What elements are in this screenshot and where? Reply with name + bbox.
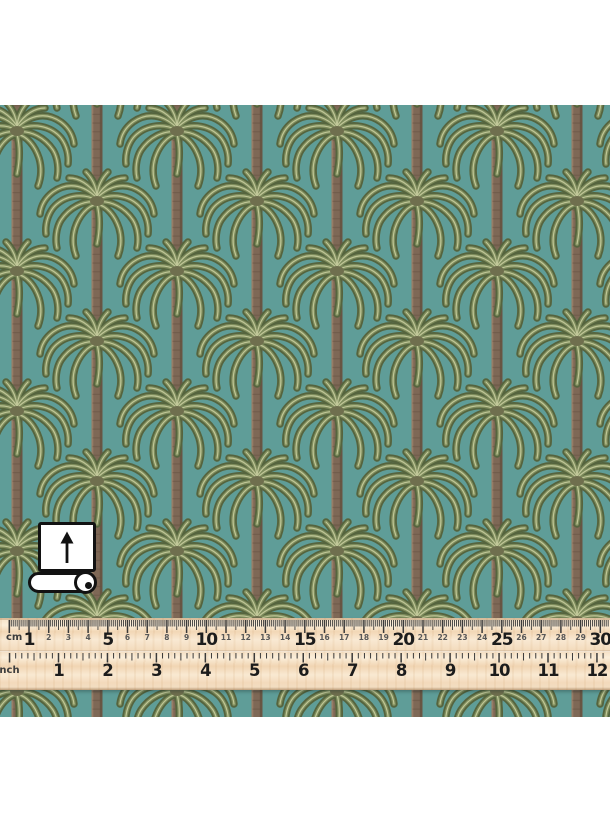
cm-number: 8 bbox=[164, 633, 169, 642]
cm-number: 14 bbox=[280, 633, 290, 642]
cm-number: 25 bbox=[491, 630, 513, 650]
cm-number: 4 bbox=[85, 633, 90, 642]
cm-number: 20 bbox=[392, 630, 414, 650]
inch-number: 4 bbox=[200, 661, 210, 680]
inch-number: 8 bbox=[396, 661, 406, 680]
cm-number: 11 bbox=[221, 633, 231, 642]
inch-number: 12 bbox=[586, 661, 607, 680]
inch-number: 2 bbox=[102, 661, 112, 680]
cm-number: 22 bbox=[437, 633, 447, 642]
cm-number: 1 bbox=[24, 630, 35, 650]
cm-number: 28 bbox=[556, 633, 566, 642]
cm-number: 16 bbox=[319, 633, 329, 642]
cm-number: 10 bbox=[195, 630, 217, 650]
roll-end-circle bbox=[74, 571, 97, 594]
cm-number: 21 bbox=[418, 633, 428, 642]
roll-end-dot bbox=[85, 582, 92, 589]
cm-number: 9 bbox=[184, 633, 189, 642]
cm-number: 5 bbox=[102, 630, 113, 650]
cm-number: 26 bbox=[516, 633, 526, 642]
cm-number: 17 bbox=[339, 633, 349, 642]
ruler-band-separator bbox=[0, 650, 610, 652]
inch-number: 10 bbox=[489, 661, 510, 680]
cm-number: 3 bbox=[66, 633, 71, 642]
ruler: cm 1234567891011121314151617181920212223… bbox=[0, 618, 610, 690]
cm-number: 24 bbox=[477, 633, 487, 642]
fabric-roll-direction-icon bbox=[28, 522, 98, 594]
up-arrow-icon bbox=[38, 522, 96, 572]
inch-number: 9 bbox=[445, 661, 455, 680]
cm-number: 12 bbox=[240, 633, 250, 642]
cm-number: 15 bbox=[294, 630, 316, 650]
inch-number: 6 bbox=[298, 661, 308, 680]
ruler-bottom-edge bbox=[0, 687, 610, 690]
cm-number: 19 bbox=[378, 633, 388, 642]
cm-number: 27 bbox=[536, 633, 546, 642]
cm-number: 29 bbox=[575, 633, 585, 642]
inch-number: 5 bbox=[249, 661, 259, 680]
inch-number: 11 bbox=[538, 661, 559, 680]
inch-number: 1 bbox=[53, 661, 63, 680]
product-image: cm 1234567891011121314151617181920212223… bbox=[0, 0, 610, 825]
inch-number: 3 bbox=[151, 661, 161, 680]
cm-number: 30 bbox=[589, 630, 610, 650]
cm-number: 18 bbox=[359, 633, 369, 642]
cm-number: 7 bbox=[145, 633, 150, 642]
cm-number: 2 bbox=[46, 633, 51, 642]
inch-number: 7 bbox=[347, 661, 357, 680]
cm-number: 23 bbox=[457, 633, 467, 642]
inch-unit-label: inch bbox=[0, 665, 20, 676]
cm-unit-label: cm bbox=[6, 632, 22, 643]
cm-number: 6 bbox=[125, 633, 130, 642]
cm-number: 13 bbox=[260, 633, 270, 642]
